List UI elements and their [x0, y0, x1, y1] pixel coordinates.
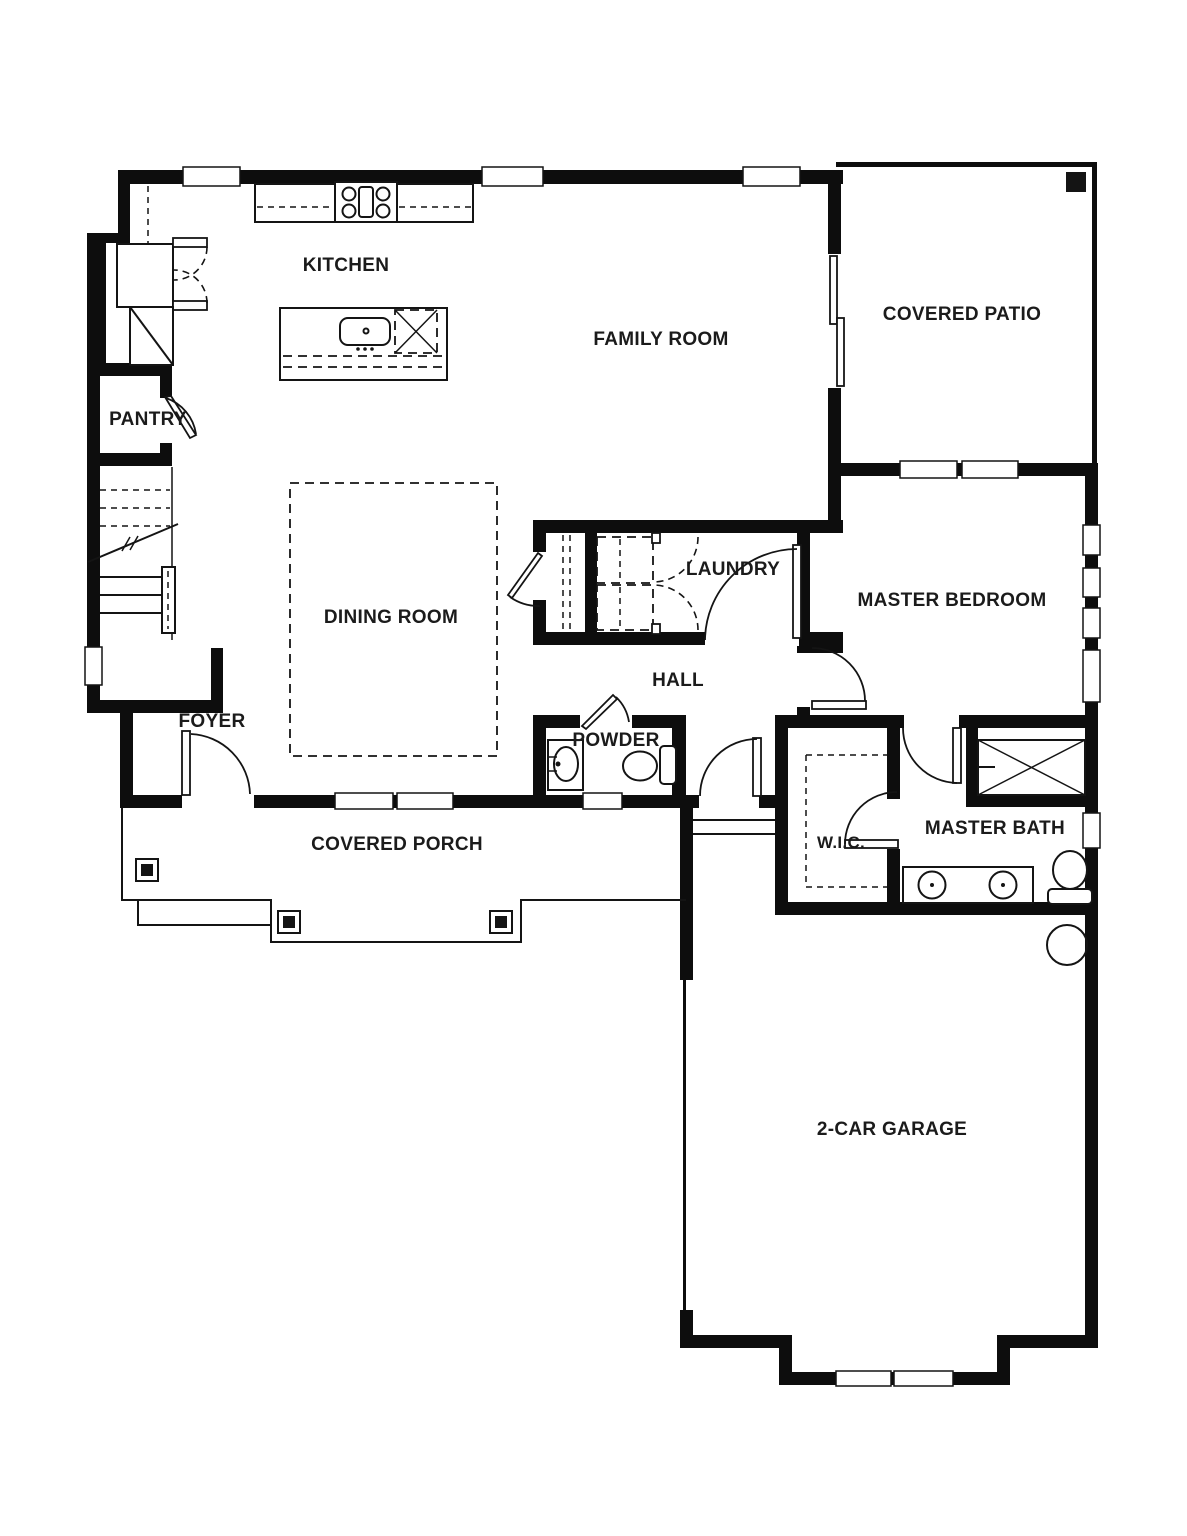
porch-post — [490, 911, 512, 933]
refrigerator — [117, 238, 207, 310]
patio-post — [1066, 172, 1086, 192]
garage-entry-door — [700, 738, 761, 796]
kitchen-island — [280, 308, 447, 380]
covered-porch-outline — [122, 808, 686, 942]
room-label-master-bath: MASTER BATH — [925, 818, 1065, 840]
room-label-dining-room: DINING ROOM — [324, 607, 458, 629]
front-door — [182, 731, 250, 795]
floor-plan-svg — [0, 0, 1187, 1536]
room-label-powder: POWDER — [572, 730, 659, 752]
walk-in-closet-shelves — [806, 755, 887, 887]
room-label-hall: HALL — [652, 670, 704, 692]
porch-post — [278, 911, 300, 933]
room-label-family-room: FAMILY ROOM — [593, 329, 728, 351]
corner-cabinet — [130, 307, 173, 365]
room-label-foyer: FOYER — [179, 711, 246, 733]
room-label-laundry: LAUNDRY — [686, 559, 780, 581]
washer — [597, 537, 653, 583]
room-label-kitchen: KITCHEN — [303, 255, 390, 277]
garage-steps — [693, 820, 775, 834]
room-label-pantry: PANTRY — [109, 409, 187, 431]
water-heater — [1047, 925, 1087, 965]
room-label-covered-patio: COVERED PATIO — [883, 304, 1041, 326]
stairs — [88, 467, 178, 640]
master-bath-door — [903, 728, 961, 783]
double-vanity — [903, 867, 1033, 903]
room-label-master-bedroom: MASTER BEDROOM — [858, 590, 1047, 612]
room-label-garage: 2-CAR GARAGE — [817, 1119, 967, 1141]
master-bedroom-door — [812, 648, 866, 709]
floor-plan-canvas: KITCHEN FAMILY ROOM COVERED PATIO PANTRY… — [0, 0, 1187, 1536]
laundry-closet — [563, 533, 698, 634]
room-label-wic: W.I.C. — [817, 833, 865, 853]
stair-handrail — [162, 567, 175, 633]
range-cooktop — [335, 182, 397, 222]
room-label-covered-porch: COVERED PORCH — [311, 834, 483, 856]
shower — [978, 740, 1085, 795]
porch-post — [136, 859, 158, 881]
dryer — [597, 585, 653, 630]
